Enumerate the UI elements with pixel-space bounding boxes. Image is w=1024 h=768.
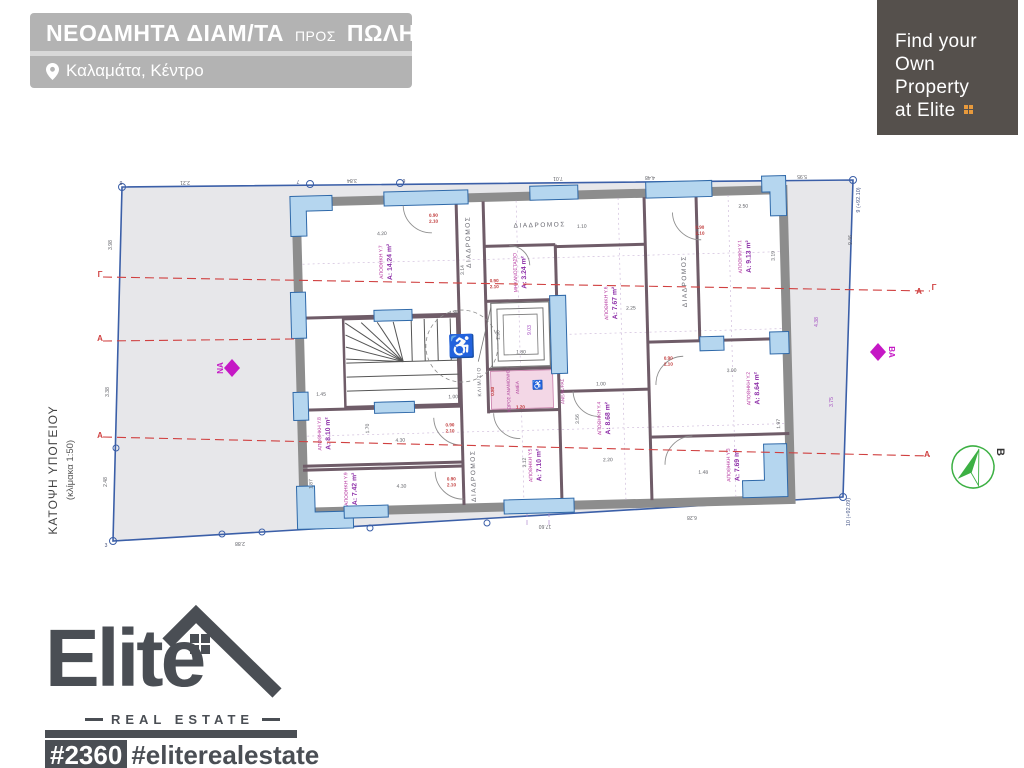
dim-label: Γ (98, 270, 103, 279)
dim-label: 2.10 (429, 219, 439, 224)
room-name: ΑΠΟΘΗΚΗ Υ.5 (528, 448, 535, 482)
room-area: Α: 9.13 m² (745, 239, 753, 272)
dim-label: 1.70 (365, 423, 371, 433)
dim-label: 1.90 (495, 330, 501, 340)
dim-label: 4.38 (814, 317, 820, 327)
room-name: ΑΠΟΘΗΚΗ Υ.1 (737, 240, 744, 274)
room-label-y2: ΑΠΟΘΗΚΗ Υ.2Α: 8.64 m² (746, 371, 762, 405)
dim-label: ΑΜΕΑ (515, 380, 520, 394)
dim-label: ΚΛΙΜ/ΣΙΟ (476, 367, 483, 397)
room-label-y4: ΑΠΟΘΗΚΗ Υ.4Α: 8.68 m² (596, 401, 612, 435)
dim-label: 3.38 (105, 387, 111, 397)
dim-label: 5.95 (797, 173, 807, 179)
flyer-page: ♿ ♿ (0, 0, 1024, 768)
logo-social-row: #2360 #eliterealestate (45, 740, 319, 768)
wheelchair-small-icon: ♿ (532, 379, 544, 390)
brand-tagline-row: REAL ESTATE (70, 712, 295, 727)
dim-label: ΑΝΕΛΚ/ΡΑΣ (560, 378, 566, 404)
dim-label: 1.48 (698, 470, 708, 476)
brand-tagline: REAL ESTATE (111, 712, 254, 727)
room-label-mhx: ΜΗΧΑΝΟΣΤΑΣΙΟΑ: 3.24 m² (512, 252, 528, 292)
dim-label: 1.80 (516, 349, 526, 355)
dim-label: 10 (+92.09) (846, 498, 852, 526)
plan-caption-scale: (κλίμακα 1:50) (65, 440, 76, 500)
dim-label: 4.48 (645, 174, 655, 180)
dim-label: Α (924, 450, 930, 459)
dim-label: 3.12 (522, 457, 528, 467)
room-label-y6: ΑΠΟΘΗΚΗ Υ.6Α: 7.67 m² (603, 286, 619, 320)
dim-label: 8 (119, 179, 122, 185)
dim-label: 6.28 (687, 514, 697, 520)
dim-label: 9.03 (527, 325, 533, 335)
dim-label: 0.90 (490, 278, 500, 283)
location-label: Καλαμάτα, Κέντρο (66, 61, 204, 81)
dim-label: 2.10 (664, 362, 674, 367)
room-name: ΜΗΧΑΝΟΣΤΑΣΙΟ (512, 253, 519, 293)
window-icon (964, 105, 973, 114)
title-sale: ΠΩΛΗΣΗ (347, 20, 447, 46)
dim-label: 1.80 (449, 310, 459, 316)
dim-label: 0.90 (447, 476, 457, 481)
dim-label: 1.20 (516, 404, 526, 409)
room-name: ΑΠΟΘΗΚΗ Υ.6 (603, 286, 610, 320)
orientation-diamond-right (870, 343, 886, 361)
dim-label: 2.20 (603, 457, 613, 463)
dim-label: 0.90 (445, 422, 455, 427)
dim-label: 2.50 (738, 203, 748, 209)
room-label-y1: ΑΠΟΘΗΚΗ Υ.1Α: 9.13 m² (737, 239, 753, 273)
dim-label: 3.75 (829, 397, 835, 407)
room-name: ΑΠΟΘΗΚΗ Υ.7 (378, 245, 385, 279)
dim-label: 2.10 (447, 482, 457, 487)
dim-label: 4.30 (397, 484, 407, 490)
house-window-icon (190, 634, 210, 654)
promo-line: Own (895, 53, 1018, 76)
tagline-dash (262, 718, 280, 721)
room-area: Α: 8.10 m² (325, 416, 333, 449)
listing-banner: ΝΕΟΔΜΗΤΑ ΔΙΑΜ/ΤΑ ΠΡΟΣ ΠΩΛΗΣΗ Καλαμάτα, Κ… (30, 13, 412, 88)
plan-caption: ΚΑΤΟΨΗ ΥΠΟΓΕΙΟΥ (46, 405, 60, 534)
dim-label: 2.10 (446, 428, 456, 433)
room-area: Α: 8.68 m² (604, 401, 612, 434)
dim-label: 2.88 (235, 540, 245, 546)
title-connector: ΠΡΟΣ (295, 28, 336, 44)
room-area: Α: 8.64 m² (754, 371, 762, 404)
room-area: Α: 7.10 m² (536, 448, 544, 481)
dim-label: 0.90 (429, 213, 439, 218)
house-roof-icon (40, 598, 300, 718)
dim-label: 0.80 (490, 386, 495, 396)
north-arrow: Β (947, 441, 1006, 494)
dim-label: 1.00 (448, 394, 458, 400)
wheelchair-icon: ♿ (448, 334, 476, 360)
dim-label: 3.56 (575, 414, 581, 424)
dim-label: 9.46 (848, 235, 854, 245)
dim-label: 3.19 (770, 251, 776, 261)
dim-label: 3.00 (727, 368, 737, 374)
promo-line: Find your (895, 30, 1018, 53)
dim-label: 2.48 (103, 477, 109, 487)
room-label-y9: ΑΠΟΘΗΚΗ Υ.9Α: 7.42 m² (343, 472, 359, 506)
dim-label: ΔΙΑΔΡΟΜΟΣ (464, 216, 472, 268)
north-label: Β (994, 448, 1006, 456)
listing-id-badge: #2360 (45, 740, 127, 768)
room-area: Α: 7.67 m² (611, 286, 619, 319)
dim-label: 17.60 (539, 523, 552, 529)
dim-label: ΔΙΑΔΡΟΜΟΣ (681, 255, 689, 307)
room-name: ΑΠΟΘΗΚΗ Υ.9 (343, 472, 350, 506)
banner-location-row: Καλαμάτα, Κέντρο (30, 56, 412, 86)
dim-label: Γ (932, 283, 937, 292)
dim-label: 0.90 (664, 356, 674, 361)
dim-label: 7 (296, 178, 299, 184)
room-area: Α: 7.69 m² (734, 448, 742, 481)
dim-label: 7.01 (553, 175, 563, 181)
dim-label: Α (916, 287, 922, 296)
room-name: ΑΠΟΘΗΚΗ Υ.8 (317, 417, 324, 451)
room-label-y3: ΑΠΟΘΗΚΗ Υ.3Α: 7.69 m² (726, 448, 742, 482)
location-pin-icon (46, 63, 59, 80)
promo-box: Find your Own Property at Elite (877, 0, 1018, 135)
dim-label: ΔΙΑΔΡΟΜΟΣ (470, 450, 478, 502)
elite-logo: Elite REAL ESTATE #2360 #eliterealestate (40, 598, 320, 766)
building: ♿ ♿ (288, 176, 795, 530)
dim-label: 3 (105, 543, 108, 549)
dim-label: 3.84 (347, 177, 357, 183)
promo-line: Property (895, 76, 1018, 99)
dim-label: 6 (402, 177, 405, 183)
promo-line: at Elite (895, 99, 1018, 122)
room-area: Α: 7.42 m² (351, 472, 359, 505)
orientation-label-right: ΒΑ (887, 346, 896, 358)
tagline-dash (85, 718, 103, 721)
room-label-y8: ΑΠΟΘΗΚΗ Υ.8Α: 8.10 m² (317, 416, 333, 450)
room-label-y5: ΑΠΟΘΗΚΗ Υ.5Α: 7.10 m² (528, 448, 544, 482)
dim-label: 2.21 (180, 179, 190, 185)
room-name: ΑΠΟΘΗΚΗ Υ.4 (596, 401, 603, 435)
dim-label: 3.14 (460, 265, 466, 275)
brand-hashtag: #eliterealestate (131, 740, 319, 768)
title-main: ΝΕΟΔΜΗΤΑ ΔΙΑΜ/ΤΑ (46, 20, 284, 46)
room-name: ΑΠΟΘΗΚΗ Υ.3 (726, 448, 733, 482)
logo-divider-bar (45, 730, 297, 738)
dim-label: 1.00 (596, 381, 606, 387)
room-name: ΑΠΟΘΗΚΗ Υ.2 (746, 372, 753, 406)
room-area: Α: 14.24 m² (386, 243, 394, 280)
orientation-label-left: ΝΑ (216, 362, 225, 374)
dim-label: 1.45 (316, 392, 326, 398)
dim-label: 2.10 (695, 231, 705, 236)
dim-label: 3.98 (108, 240, 114, 250)
dim-label: 1.87 (308, 479, 314, 489)
dim-label: 9 (+92.10) (856, 187, 862, 212)
amea-waiting-area (491, 370, 554, 410)
dim-label: 1.97 (776, 419, 782, 429)
dim-label: 0.90 (695, 225, 705, 230)
dim-label: 2.25 (626, 305, 636, 311)
dim-label: 4.30 (395, 438, 405, 444)
banner-title: ΝΕΟΔΜΗΤΑ ΔΙΑΜ/ΤΑ ΠΡΟΣ ΠΩΛΗΣΗ (30, 13, 412, 51)
room-label-y7: ΑΠΟΘΗΚΗ Υ.7Α: 14.24 m² (378, 243, 394, 280)
dim-label: ΔΙΑΔΡΟΜΟΣ (514, 221, 566, 229)
dim-label: 1.10 (577, 224, 587, 230)
dim-label: 2.10 (490, 284, 500, 289)
dim-label: 4.20 (377, 231, 387, 237)
promo-brand: at Elite (895, 100, 956, 121)
dim-label: Α (97, 334, 103, 343)
dim-label: Α (97, 431, 103, 440)
